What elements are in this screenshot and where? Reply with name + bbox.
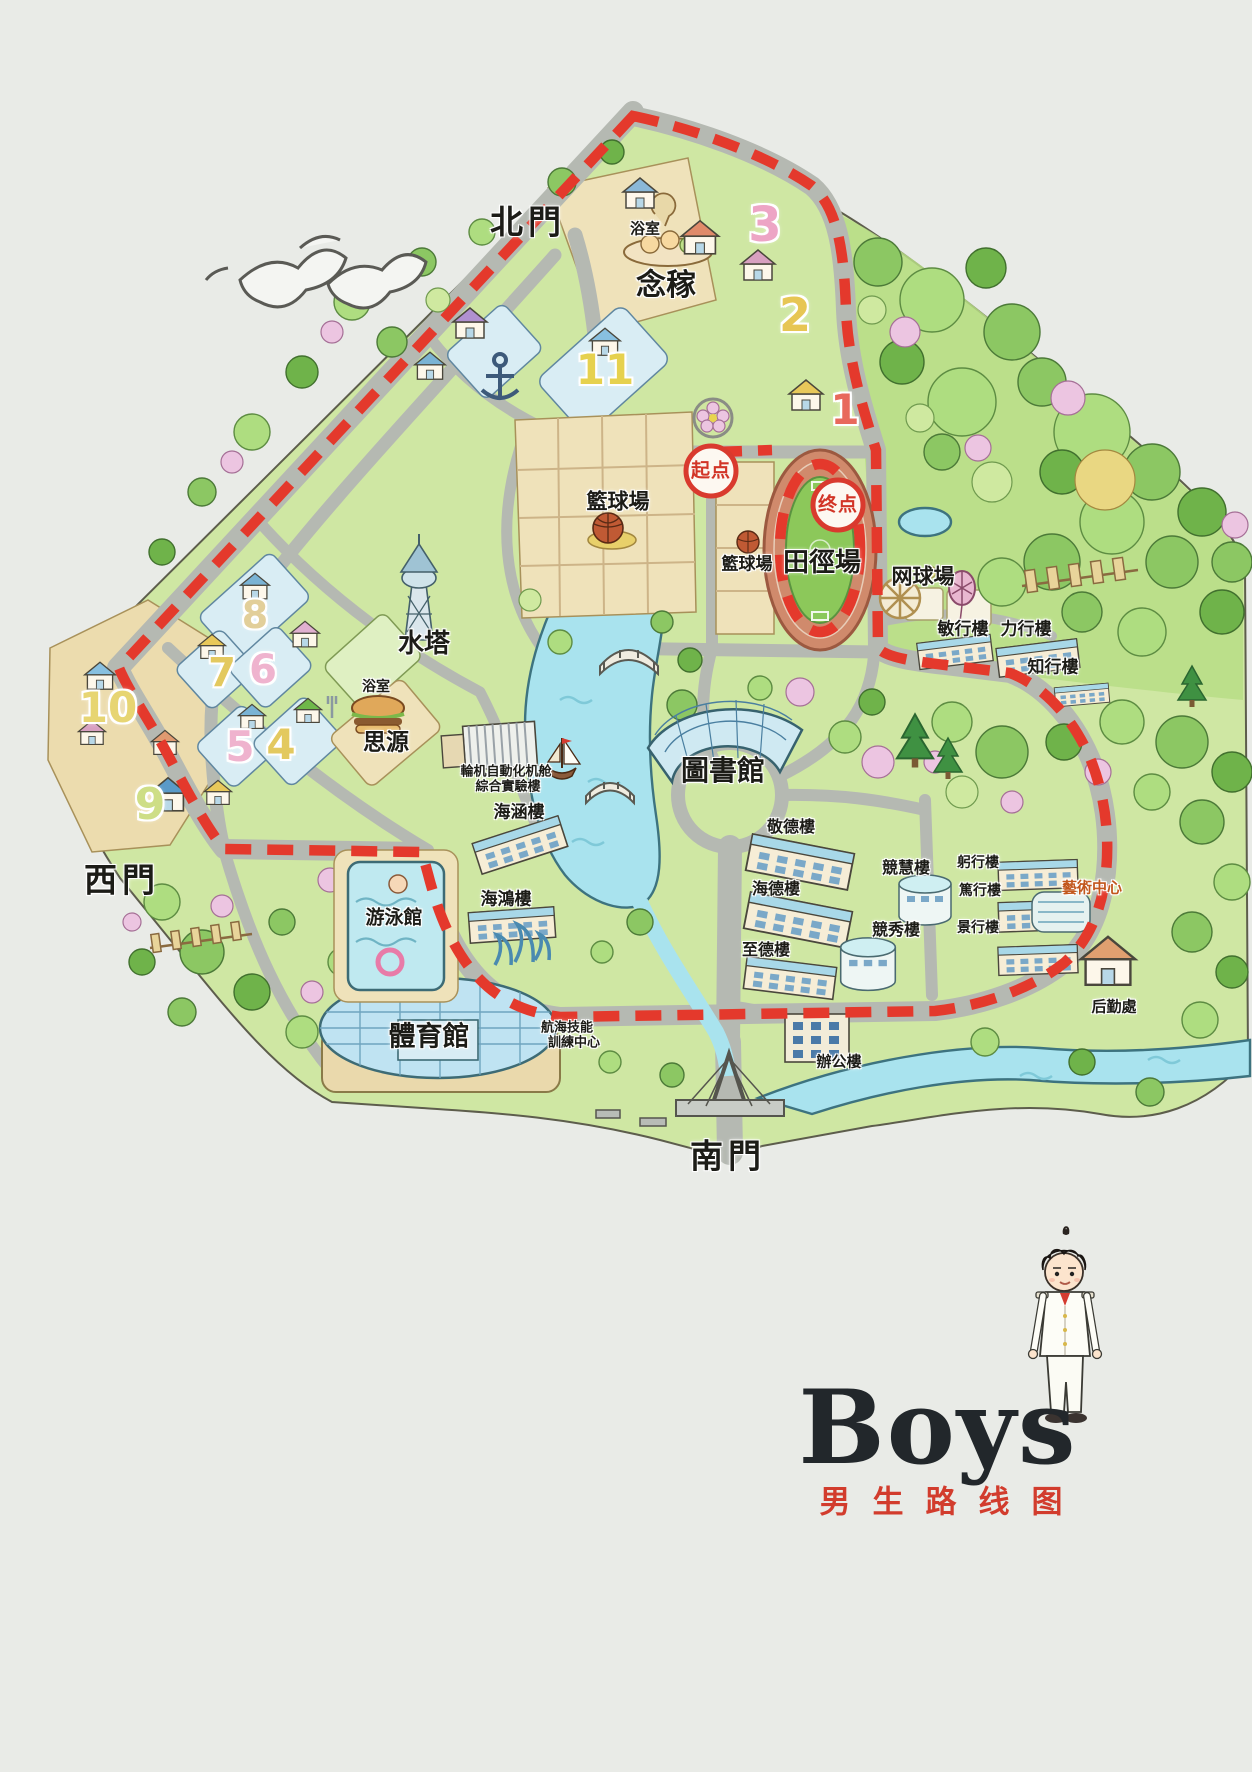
label-gongxing: 躬行樓 <box>957 856 999 870</box>
label-jingxing: 景行樓 <box>957 921 999 935</box>
dorm-number-4: 4 <box>266 724 295 766</box>
dorm-number-6: 6 <box>249 650 277 690</box>
birds-icon <box>206 236 426 308</box>
route-end-badge-label: 终点 <box>818 496 858 515</box>
dorm-number-7: 7 <box>208 653 236 693</box>
route-title: 男生路线图 <box>820 1477 1085 1522</box>
pond <box>899 508 951 536</box>
dorm-number-8: 8 <box>242 596 268 634</box>
label-haide: 海德樓 <box>752 881 800 897</box>
dorm-number-1: 1 <box>830 389 859 431</box>
label-water-tower: 水塔 <box>398 631 450 657</box>
label-office: 辦公樓 <box>816 1055 861 1070</box>
label-zhide: 至德樓 <box>742 942 790 958</box>
label-jingde: 敬德樓 <box>767 819 815 835</box>
dorm-number-10: 10 <box>79 687 137 729</box>
label-tennis: 网球場 <box>892 566 955 587</box>
label-basketball-2: 籃球場 <box>722 557 773 574</box>
label-jinghui: 競慧樓 <box>882 860 930 876</box>
label-bath-west: 浴室 <box>362 680 390 694</box>
dorm-number-5: 5 <box>225 726 254 768</box>
label-nav-center-1: 航海技能 <box>541 1022 593 1035</box>
art-center-building <box>1032 892 1090 932</box>
dorm-number-9: 9 <box>135 783 166 827</box>
label-haihan: 海涵樓 <box>494 805 545 822</box>
campus-route-poster: 北門 西門 南門 起点 终点 浴室 念稼 籃球場 籃球場 田徑場 网球場 敏行樓… <box>0 0 1252 1772</box>
label-jingxiu: 競秀樓 <box>872 922 920 938</box>
label-basketball-1: 籃球場 <box>587 491 650 512</box>
label-nianjia: 念稼 <box>636 271 696 301</box>
west-gate-label: 西門 <box>84 864 160 897</box>
label-nav-center-2: 訓練中心 <box>548 1037 600 1050</box>
label-marine-lab-2: 綜合實驗樓 <box>475 781 540 794</box>
label-lixing: 力行樓 <box>1001 622 1052 639</box>
label-minxing: 敏行樓 <box>938 622 989 639</box>
boys-logo: Boys <box>799 1368 1078 1488</box>
dorm-number-3: 3 <box>748 201 781 249</box>
label-duxing: 篤行樓 <box>959 884 1001 898</box>
south-gate-label: 南門 <box>690 1140 766 1173</box>
flower-roundabout-icon <box>694 399 732 437</box>
dorm-number-2: 2 <box>779 292 811 338</box>
label-haihong: 海鴻樓 <box>481 892 532 909</box>
label-bath-north: 浴室 <box>630 222 660 237</box>
north-gate-label: 北門 <box>490 206 566 239</box>
label-logistics: 后勤處 <box>1091 1000 1136 1015</box>
label-art-center: 藝術中心 <box>1062 881 1122 896</box>
label-gym: 體育館 <box>389 1024 470 1051</box>
route-start-badge-label: 起点 <box>691 462 731 481</box>
label-zhixing: 知行樓 <box>1028 660 1079 677</box>
label-marine-lab-1: 輪机自動化机舱 <box>460 766 551 779</box>
label-siyuan: 思源 <box>363 731 409 754</box>
label-library: 圖書館 <box>681 757 765 785</box>
label-track-field: 田徑場 <box>783 550 861 576</box>
label-swimming: 游泳館 <box>365 909 422 928</box>
dorm-number-11: 11 <box>576 349 634 391</box>
